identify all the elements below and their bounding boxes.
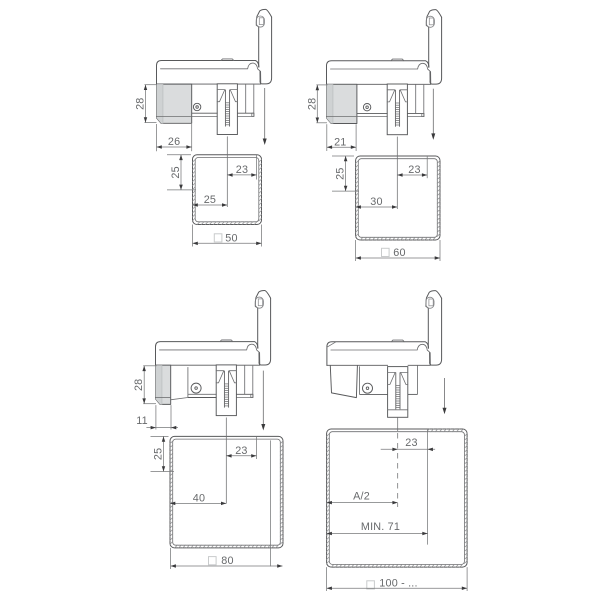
svg-text:25: 25: [335, 167, 347, 179]
svg-text:21: 21: [334, 136, 346, 148]
svg-text:26: 26: [168, 136, 180, 148]
svg-text:23: 23: [235, 445, 247, 457]
svg-text:28: 28: [133, 379, 145, 391]
svg-text:A/2: A/2: [353, 490, 370, 502]
svg-text:11: 11: [136, 415, 148, 427]
svg-text:25: 25: [152, 448, 164, 460]
svg-text:28: 28: [306, 98, 318, 110]
svg-text:30: 30: [370, 196, 382, 208]
svg-text:50: 50: [225, 232, 237, 244]
svg-text:40: 40: [193, 492, 205, 504]
svg-text:23: 23: [236, 164, 248, 176]
svg-text:80: 80: [221, 555, 233, 567]
svg-text:25: 25: [170, 166, 182, 178]
svg-text:23: 23: [408, 164, 420, 176]
svg-text:100 - ...: 100 - ...: [379, 577, 417, 589]
svg-text:23: 23: [405, 437, 417, 449]
svg-text:MIN. 71: MIN. 71: [361, 521, 400, 533]
svg-text:28: 28: [134, 97, 146, 109]
svg-text:25: 25: [204, 194, 216, 206]
svg-text:60: 60: [393, 247, 405, 259]
